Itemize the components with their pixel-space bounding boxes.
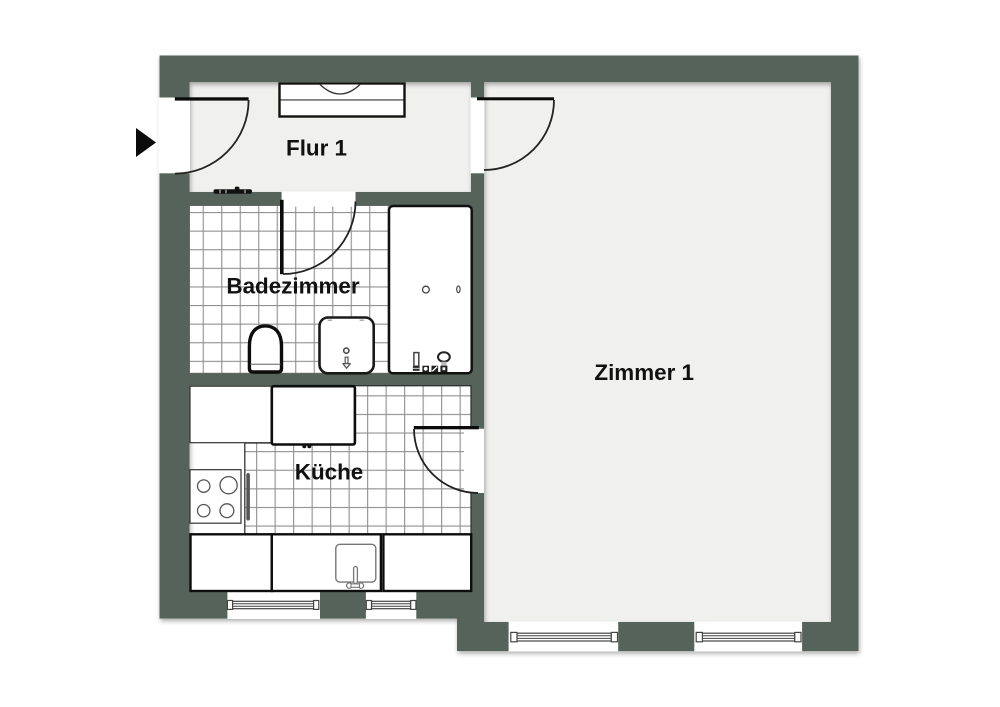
svg-text:Zimmer 1: Zimmer 1 [594, 360, 694, 385]
svg-text:Badezimmer: Badezimmer [226, 273, 359, 298]
svg-text:Küche: Küche [295, 460, 363, 485]
svg-text:Flur 1: Flur 1 [286, 136, 347, 161]
